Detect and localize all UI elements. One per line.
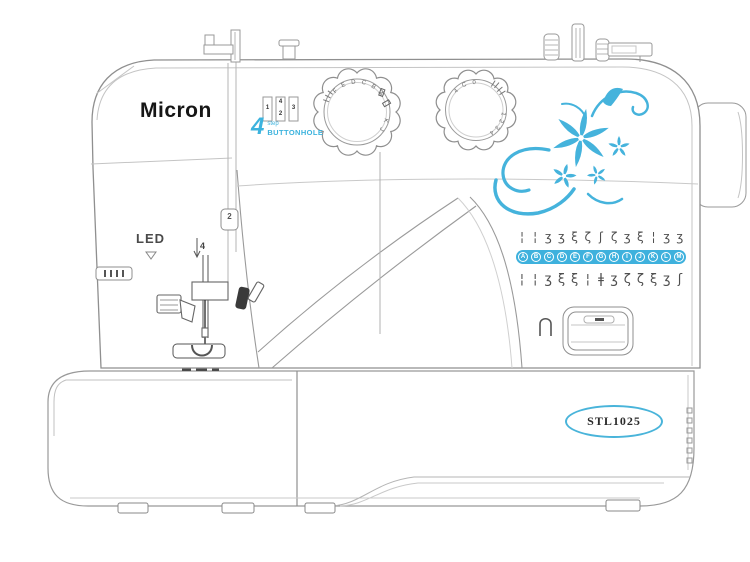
reverse-lever-button [563,307,633,355]
stitch-selector-letter: K [648,252,658,262]
stitch-selector-letter: L [661,252,671,262]
model-number-text: STL1025 [587,414,641,429]
buttonhole-word: BUTTONHOLE [267,128,323,137]
model-badge: STL1025 [565,405,663,438]
stitch-symbol: ζ [634,270,646,289]
stitch-symbol: ʃ [674,270,686,289]
stitch-symbol: ζ [621,270,633,289]
stitch-symbol: ʒ [542,270,554,289]
stitch-selector-letter: B [531,252,541,262]
thread-guide-2-number: 2 [221,212,238,221]
stitch-symbol: ¦ [582,270,594,289]
stitch-selector-letter: E [570,252,580,262]
buttonhole-step-3: 3 [289,105,298,111]
stitch-chart-bottom-row: ¦¦ʒξξ¦ǂʒζζξʒʃ [516,265,686,289]
stitch-symbol: ʒ [555,228,567,249]
stitch-symbol: ξ [634,228,646,249]
stitch-symbol: ¦ [529,270,541,289]
stitch-symbol: ǂ [595,270,607,289]
stitch-symbol: ʒ [661,228,673,249]
stitch-pattern-chart: ¦¦ʒʒξζʃζʒξ¦ʒʒ ABCDEFGHIJKLM ¦¦ʒξξ¦ǂʒζζξʒ… [516,228,686,289]
stitch-selector-letter: G [596,252,606,262]
led-label: LED [136,231,165,246]
stitch-symbol: ʒ [608,270,620,289]
stitch-chart-top-row: ¦¦ʒʒξζʃζʒξ¦ʒʒ [516,228,686,249]
buttonhole-step-1: 1 [263,105,272,111]
thread-guide-4-number: 4 [200,241,205,251]
stitch-symbol: ζ [582,228,594,249]
stitch-symbol: ʒ [674,228,686,249]
stitch-symbol: ʒ [661,270,673,289]
stitch-symbol: ξ [569,270,581,289]
buttonhole-step-4: 4 [276,99,285,105]
stitch-symbol: ζ [608,228,620,249]
stitch-symbol: ʃ [595,228,607,249]
spool-pins [204,24,652,62]
stitch-selector-bar: ABCDEFGHIJKLM [516,250,686,264]
stitch-length-dial: 4 C 0 1 2 3 4 [436,70,516,150]
stitch-symbol: ¦ [529,228,541,249]
stitch-selector-letter: M [674,252,684,262]
stitch-selector-letter: J [635,252,645,262]
brand-logo-text: Micron [140,99,212,123]
stitch-symbol: ¦ [516,270,528,289]
stitch-selector-letter: C [544,252,554,262]
buttonhole-step-word: step [267,121,323,128]
stitch-symbol: ʒ [542,228,554,249]
thread-cutter [96,267,132,280]
stitch-symbol: ξ [648,270,660,289]
handwheel [694,103,746,207]
buttonhole-number: 4 [251,115,264,139]
stitch-selector-letter: D [557,252,567,262]
product-illustration: F E D C B A K J 4 C 0 1 2 3 4 [0,0,750,562]
stitch-symbol: ¦ [648,228,660,249]
stitch-symbol: ¦ [516,228,528,249]
stitch-symbol: ξ [555,270,567,289]
stitch-selector-letter: H [609,252,619,262]
pattern-selector-dial: F E D C B A K J [314,69,400,155]
stitch-selector-letter: I [622,252,632,262]
presser-foot [173,344,225,358]
buttonhole-4step-label: 4 step BUTTONHOLE [251,115,323,139]
stitch-symbol: ξ [569,228,581,249]
stitch-selector-letter: F [583,252,593,262]
stitch-selector-letter: A [518,252,528,262]
stitch-symbol: ʒ [621,228,633,249]
